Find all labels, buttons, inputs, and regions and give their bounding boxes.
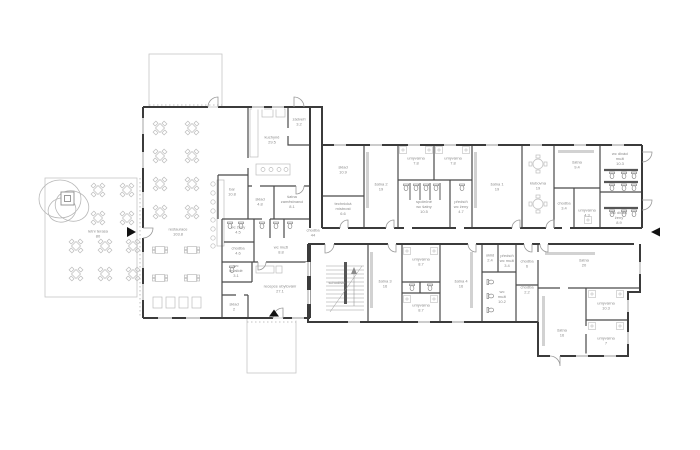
room-label-satna-4: šatna 4 16 [454, 279, 467, 289]
room-label-satna-3: šatna 3 16 [378, 279, 391, 289]
room-label-umyvarna-103: umývárna 10.3 [597, 301, 615, 311]
room-label-umyvarna-b: umývárna 7.8 [444, 156, 462, 166]
room-label-sklad-48: sklad 4.8 [255, 197, 264, 207]
room-label-umyvarna-a: umývárna 7.8 [407, 156, 425, 166]
room-label-satna-20: šatna 20 [579, 258, 589, 268]
room-label-chodba-46: chodba 4.6 [231, 246, 244, 256]
room-label-predsin-wc-zeny: předsíň wc ženy 4.7 [454, 200, 468, 215]
room-label-satna-1: šatna 1 19 [490, 182, 503, 192]
room-label-recepce: recepce ubytování 27.1 [264, 284, 297, 294]
room-label-satna-16: šatna 16 [557, 328, 567, 338]
room-label-wc-invalide: wc invalidé 3.1 [229, 264, 243, 279]
room-label-wc-zeny: wc ženy 4.5 [231, 225, 245, 235]
room-label-wc-muzi-88: wc muži 8.8 [274, 245, 288, 255]
room-label-umyvarna-87a: umývárna 8.7 [412, 257, 430, 267]
floor-plan: letní terasa 80 restaurace 103.8 bar 10.… [0, 0, 700, 450]
room-labels: letní terasa 80 restaurace 103.8 bar 10.… [0, 0, 700, 450]
room-label-spolecne-wc: společné wc šatny 10.5 [416, 200, 432, 215]
room-label-technicka: technická místnost 6.6 [335, 202, 352, 217]
room-label-umyvarna-43: umývárna 4.3 [578, 208, 596, 218]
room-label-sklad-2: sklad 2 [229, 302, 238, 312]
room-label-uklid: úklid 2.4 [486, 253, 494, 263]
room-label-satna-2: šatna 2 19 [374, 182, 387, 192]
room-label-chodba-main: chodba 44 [306, 228, 319, 238]
room-label-bar: bar 10.8 [228, 187, 236, 197]
room-label-wc-divaci-muzi: wc diváci muži 10.3 [612, 152, 628, 167]
room-label-chodba-34: chodba 3.4 [557, 201, 570, 211]
room-label-letni-terasa: letní terasa 80 [88, 229, 108, 239]
room-label-umyvarna-87b: umývárna 8.7 [412, 303, 430, 313]
room-label-chodba-22: chodba 2.2 [520, 285, 533, 295]
room-label-schodiste: schodiště [329, 281, 346, 286]
room-label-chodba-6: chodba 6 [520, 259, 533, 269]
room-label-wc-divaci-zeny: wc diváci ženy 8.9 [611, 211, 627, 226]
room-label-wc-muzi-102: wc muži 10.2 [498, 290, 506, 305]
room-label-restaurace: restaurace 103.8 [169, 227, 188, 237]
room-label-predsin-wc-muzi: předsíň wc muži 3.4 [500, 254, 514, 269]
room-label-kuchyne: kuchyně 29.5 [265, 135, 280, 145]
room-label-sklad-109: sklad 10.9 [338, 165, 347, 175]
room-label-umyvarna-7: umývárna 7 [597, 336, 615, 346]
room-label-satna-94: šatna 9.4 [572, 160, 582, 170]
room-label-klubovna: klubovna 19 [530, 181, 546, 191]
room-label-satna-zamestnanci: šatna zaměstnanci 8.1 [281, 195, 303, 210]
room-label-zadveri: zádveří 3.2 [292, 117, 305, 127]
